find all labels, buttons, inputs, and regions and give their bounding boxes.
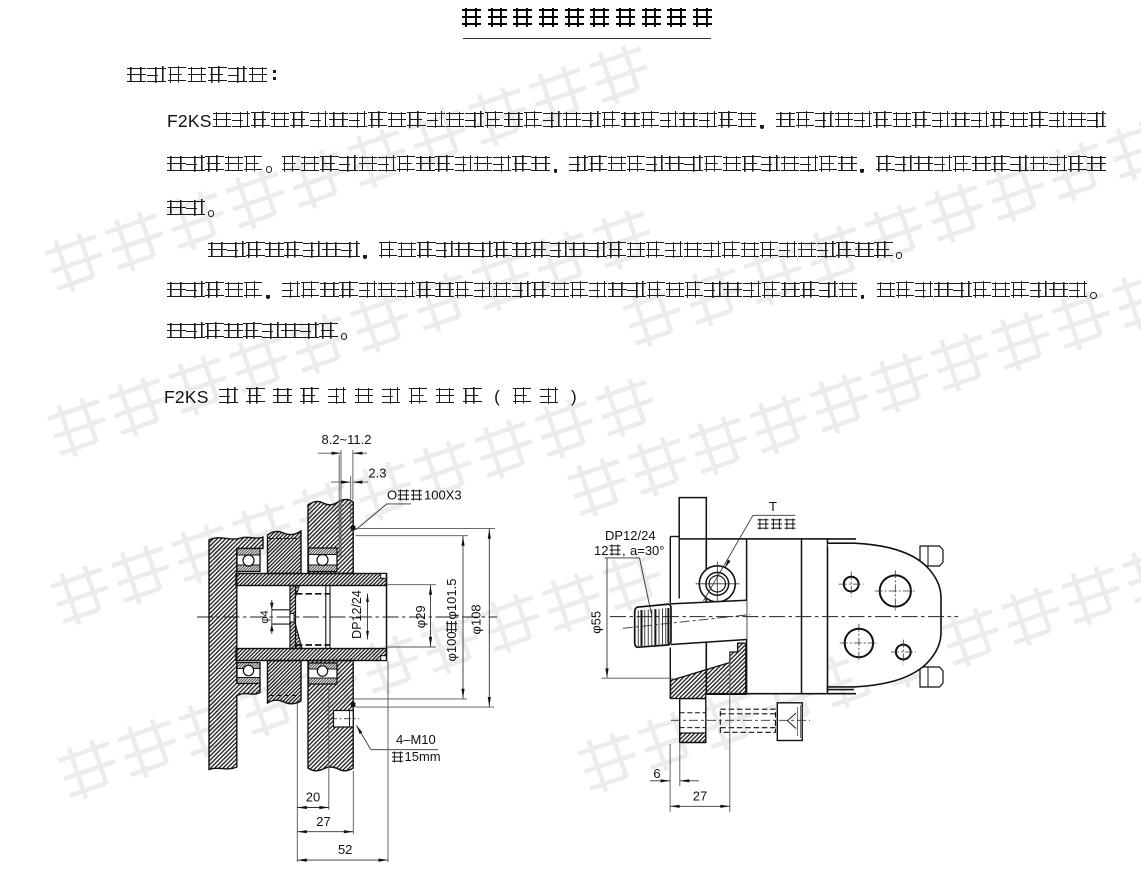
svg-text:O: O <box>387 488 397 503</box>
svg-text:φ29: φ29 <box>413 605 428 628</box>
svg-text:4–M10: 4–M10 <box>396 732 436 747</box>
svg-text:T: T <box>769 499 777 514</box>
svg-text:φ4: φ4 <box>259 610 271 623</box>
svg-text:φ108: φ108 <box>469 604 484 634</box>
svg-text:52: 52 <box>338 842 352 857</box>
svg-text:12: 12 <box>594 543 608 558</box>
svg-text:φ100: φ100 <box>444 631 459 661</box>
svg-text:15mm: 15mm <box>405 749 441 764</box>
svg-text:6: 6 <box>653 766 660 781</box>
svg-text:,: , <box>622 543 629 558</box>
svg-text:8.2~11.2: 8.2~11.2 <box>321 432 371 447</box>
svg-text:100X3: 100X3 <box>424 488 462 503</box>
svg-text:27: 27 <box>316 814 330 829</box>
svg-text:φ55: φ55 <box>589 611 604 634</box>
svg-text:DP12/24: DP12/24 <box>350 590 364 639</box>
svg-text:DP12/24: DP12/24 <box>605 528 656 543</box>
svg-text:27: 27 <box>693 789 707 804</box>
svg-text:2.3: 2.3 <box>368 466 386 481</box>
svg-text:20: 20 <box>306 790 320 805</box>
svg-text:φ101.5: φ101.5 <box>444 579 459 620</box>
svg-text:a=30°: a=30° <box>630 543 664 558</box>
